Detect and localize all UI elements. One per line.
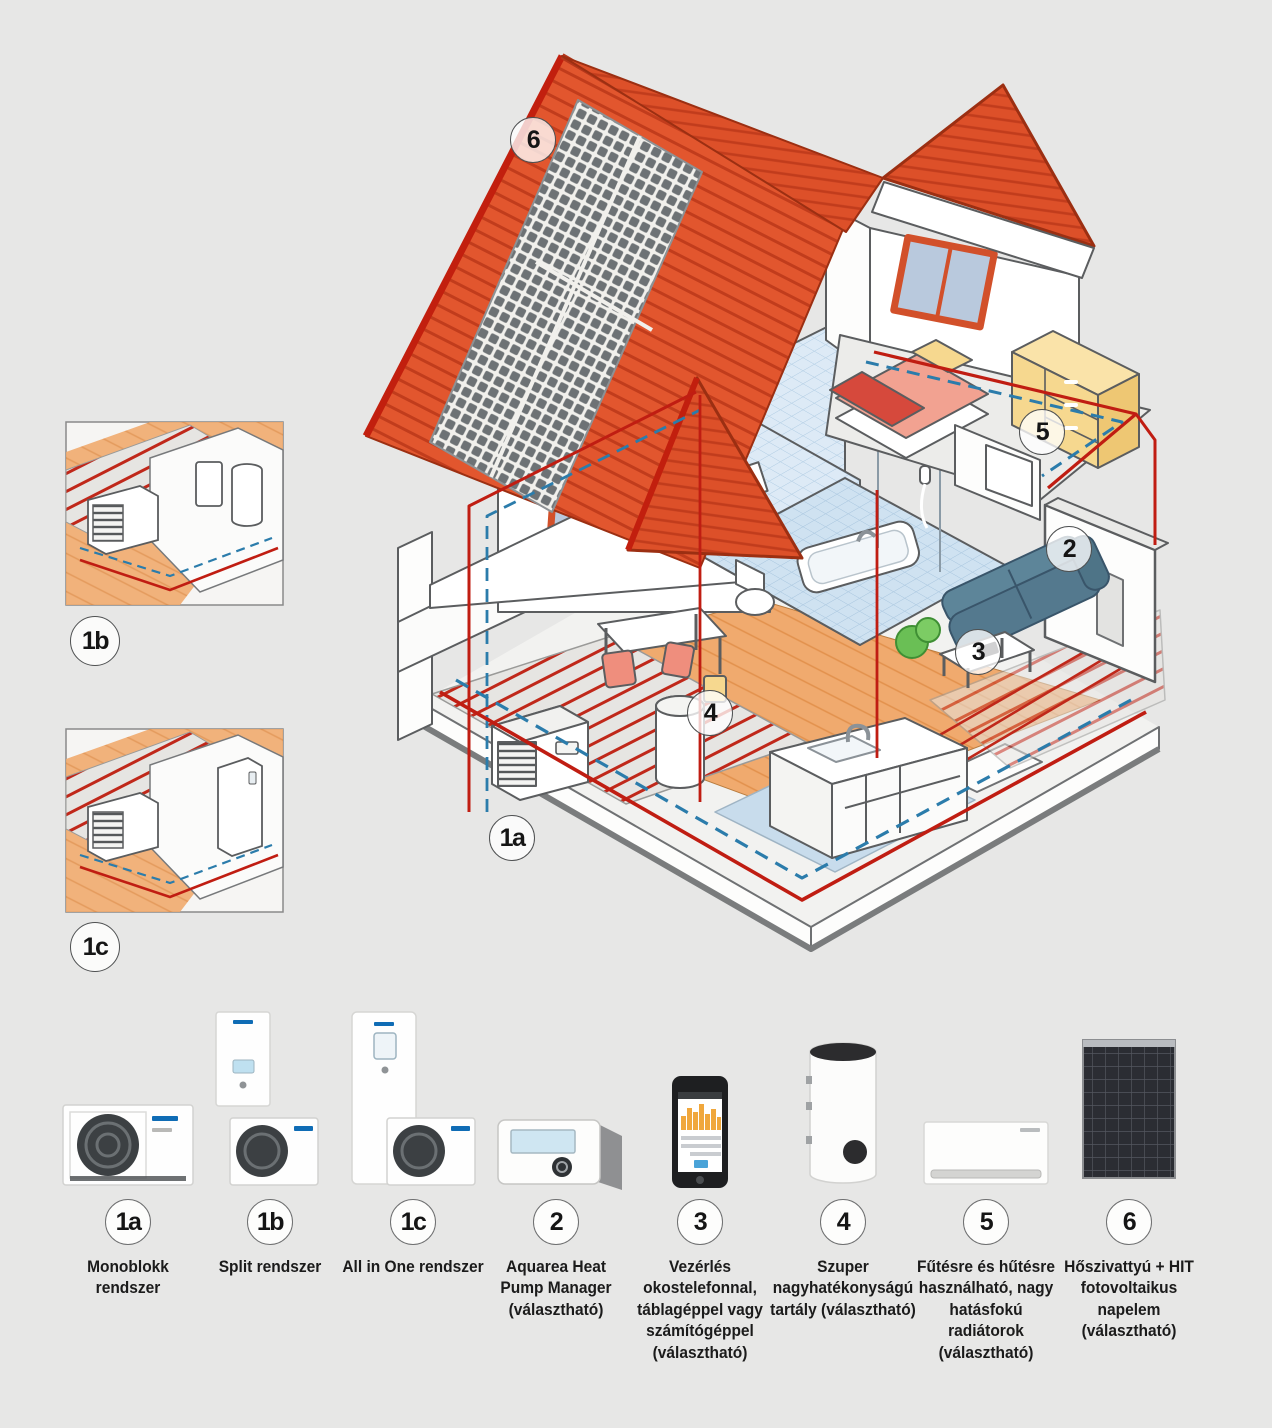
legend-badge-1a[interactable]: 1a — [105, 1199, 151, 1245]
page: 6 5 2 3 4 1a 1b 1c 1a Monoblokk rendszer… — [0, 0, 1272, 1428]
legend-caption-1a: Monoblokk rendszer — [55, 1257, 202, 1300]
legend-item-1c: 1c All in One rendszer — [335, 1199, 491, 1278]
legend-badge-2[interactable]: 2 — [533, 1199, 579, 1245]
legend-item-1a: 1a Monoblokk rendszer — [50, 1199, 206, 1300]
inset-badge-1c[interactable]: 1c — [70, 922, 120, 972]
legend-caption-1b: Split rendszer — [197, 1257, 344, 1278]
chair — [661, 642, 694, 678]
product-smartphone-app — [672, 1076, 728, 1188]
product-split — [216, 1012, 318, 1185]
product-radiator — [924, 1122, 1048, 1184]
legend-item-1b: 1b Split rendszer — [192, 1199, 348, 1278]
legend-item-6: 6 Hőszivattyú + HIT fotovoltaikus napele… — [1051, 1199, 1207, 1343]
legend-caption-5: Fűtésre és hűtésre használható, nagy hat… — [913, 1257, 1060, 1364]
legend-badge-4[interactable]: 4 — [820, 1199, 866, 1245]
callout-5[interactable]: 5 — [1019, 409, 1065, 455]
legend-badge-5[interactable]: 5 — [963, 1199, 1009, 1245]
legend-caption-2: Aquarea Heat Pump Manager (választható) — [483, 1257, 630, 1321]
inset-all-in-one-system — [66, 729, 283, 912]
legend-item-4: 4 Szuper nagyhatékonyságú tartály (válas… — [765, 1199, 921, 1321]
legend-badge-3[interactable]: 3 — [677, 1199, 723, 1245]
inset-split-system — [66, 422, 283, 605]
products — [63, 1012, 1175, 1190]
legend-badge-1c[interactable]: 1c — [390, 1199, 436, 1245]
hydro-unit — [196, 462, 222, 506]
product-tank — [806, 1043, 876, 1183]
chair — [602, 650, 636, 688]
window — [894, 237, 995, 326]
house — [366, 56, 1168, 949]
tank — [232, 464, 262, 526]
product-all-in-one — [352, 1012, 475, 1185]
product-monoblock — [63, 1105, 193, 1185]
inset-badge-1b[interactable]: 1b — [70, 616, 120, 666]
legend-caption-3: Vezérlés okostelefonnal, táblagéppel vag… — [627, 1257, 774, 1364]
legend-item-5: 5 Fűtésre és hűtésre használható, nagy h… — [908, 1199, 1064, 1364]
callout-4[interactable]: 4 — [687, 690, 733, 736]
product-solar-panel — [1083, 1040, 1175, 1178]
callout-3[interactable]: 3 — [955, 629, 1001, 675]
all-in-one-unit — [218, 758, 262, 856]
bedroom — [826, 205, 1150, 520]
callout-1a[interactable]: 1a — [489, 815, 535, 861]
legend-caption-4: Szuper nagyhatékonyságú tartály (választ… — [770, 1257, 917, 1321]
legend-badge-6[interactable]: 6 — [1106, 1199, 1152, 1245]
callout-2[interactable]: 2 — [1046, 526, 1092, 572]
callout-6[interactable]: 6 — [510, 117, 556, 163]
legend-item-3: 3 Vezérlés okostelefonnal, táblagéppel v… — [622, 1199, 778, 1364]
legend-badge-1b[interactable]: 1b — [247, 1199, 293, 1245]
legend-item-2: 2 Aquarea Heat Pump Manager (választható… — [478, 1199, 634, 1321]
product-heat-pump-manager — [498, 1120, 622, 1190]
legend-caption-1c: All in One rendszer — [340, 1257, 487, 1278]
legend-caption-6: Hőszivattyú + HIT fotovoltaikus napelem … — [1056, 1257, 1203, 1343]
